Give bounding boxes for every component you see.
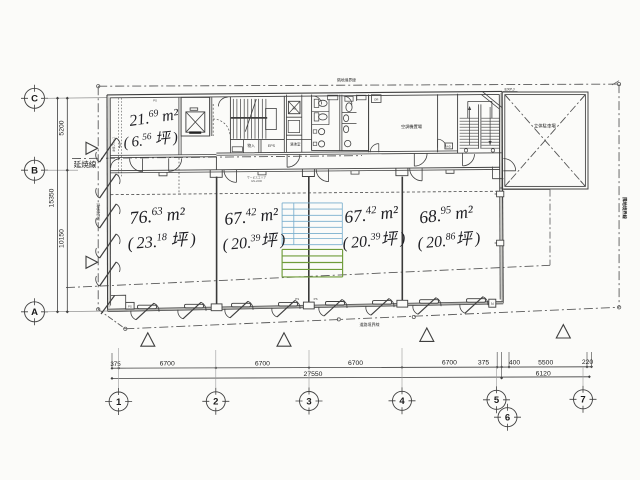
svg-text:2: 2 — [213, 397, 218, 408]
svg-text:6: 6 — [505, 413, 510, 424]
svg-text:4: 4 — [399, 396, 405, 407]
svg-text:220: 220 — [582, 359, 594, 366]
svg-text:1: 1 — [116, 397, 122, 408]
svg-text:湯沸室: 湯沸室 — [290, 141, 301, 146]
svg-text:7: 7 — [580, 395, 585, 406]
svg-text:5200: 5200 — [59, 120, 66, 135]
svg-text:5: 5 — [494, 395, 500, 406]
svg-text:PS: PS — [295, 297, 299, 301]
svg-text:27550: 27550 — [304, 371, 323, 378]
svg-text:AD: AD — [447, 145, 451, 149]
svg-text:375: 375 — [478, 360, 490, 367]
svg-text:EXP.J: EXP.J — [504, 87, 514, 91]
svg-text:隣地境界線: 隣地境界線 — [621, 197, 628, 219]
svg-text:6120: 6120 — [536, 370, 551, 377]
svg-text:15350: 15350 — [49, 188, 56, 207]
svg-text:5500: 5500 — [538, 359, 553, 366]
svg-text:6700: 6700 — [255, 360, 270, 367]
svg-text:10150: 10150 — [59, 229, 66, 248]
svg-text:GN-2200: GN-2200 — [251, 179, 262, 183]
svg-text:C: C — [31, 94, 38, 105]
svg-text:6700: 6700 — [442, 360, 457, 367]
svg-text:PS: PS — [128, 304, 132, 308]
svg-text:立体駐車場: 立体駐車場 — [534, 123, 557, 130]
svg-text:B: B — [31, 166, 38, 177]
svg-text:6700: 6700 — [160, 361, 175, 368]
svg-text:空調機置場: 空調機置場 — [401, 123, 423, 130]
svg-text:道路境界線: 道路境界線 — [360, 321, 380, 327]
svg-text:サービスエリア: サービスエリア — [247, 175, 266, 179]
svg-text:400: 400 — [509, 359, 521, 366]
svg-text:隣地境界線: 隣地境界線 — [337, 77, 356, 82]
svg-text:PS: PS — [314, 297, 318, 301]
svg-text:A: A — [31, 307, 38, 318]
svg-text:延焼線: 延焼線 — [74, 159, 97, 169]
svg-text:物入: 物入 — [247, 143, 255, 148]
svg-text:6700: 6700 — [348, 360, 363, 367]
svg-text:3: 3 — [306, 396, 311, 407]
svg-text:375: 375 — [110, 361, 121, 368]
svg-text:PS: PS — [153, 99, 157, 103]
svg-text:EPS: EPS — [268, 144, 276, 148]
